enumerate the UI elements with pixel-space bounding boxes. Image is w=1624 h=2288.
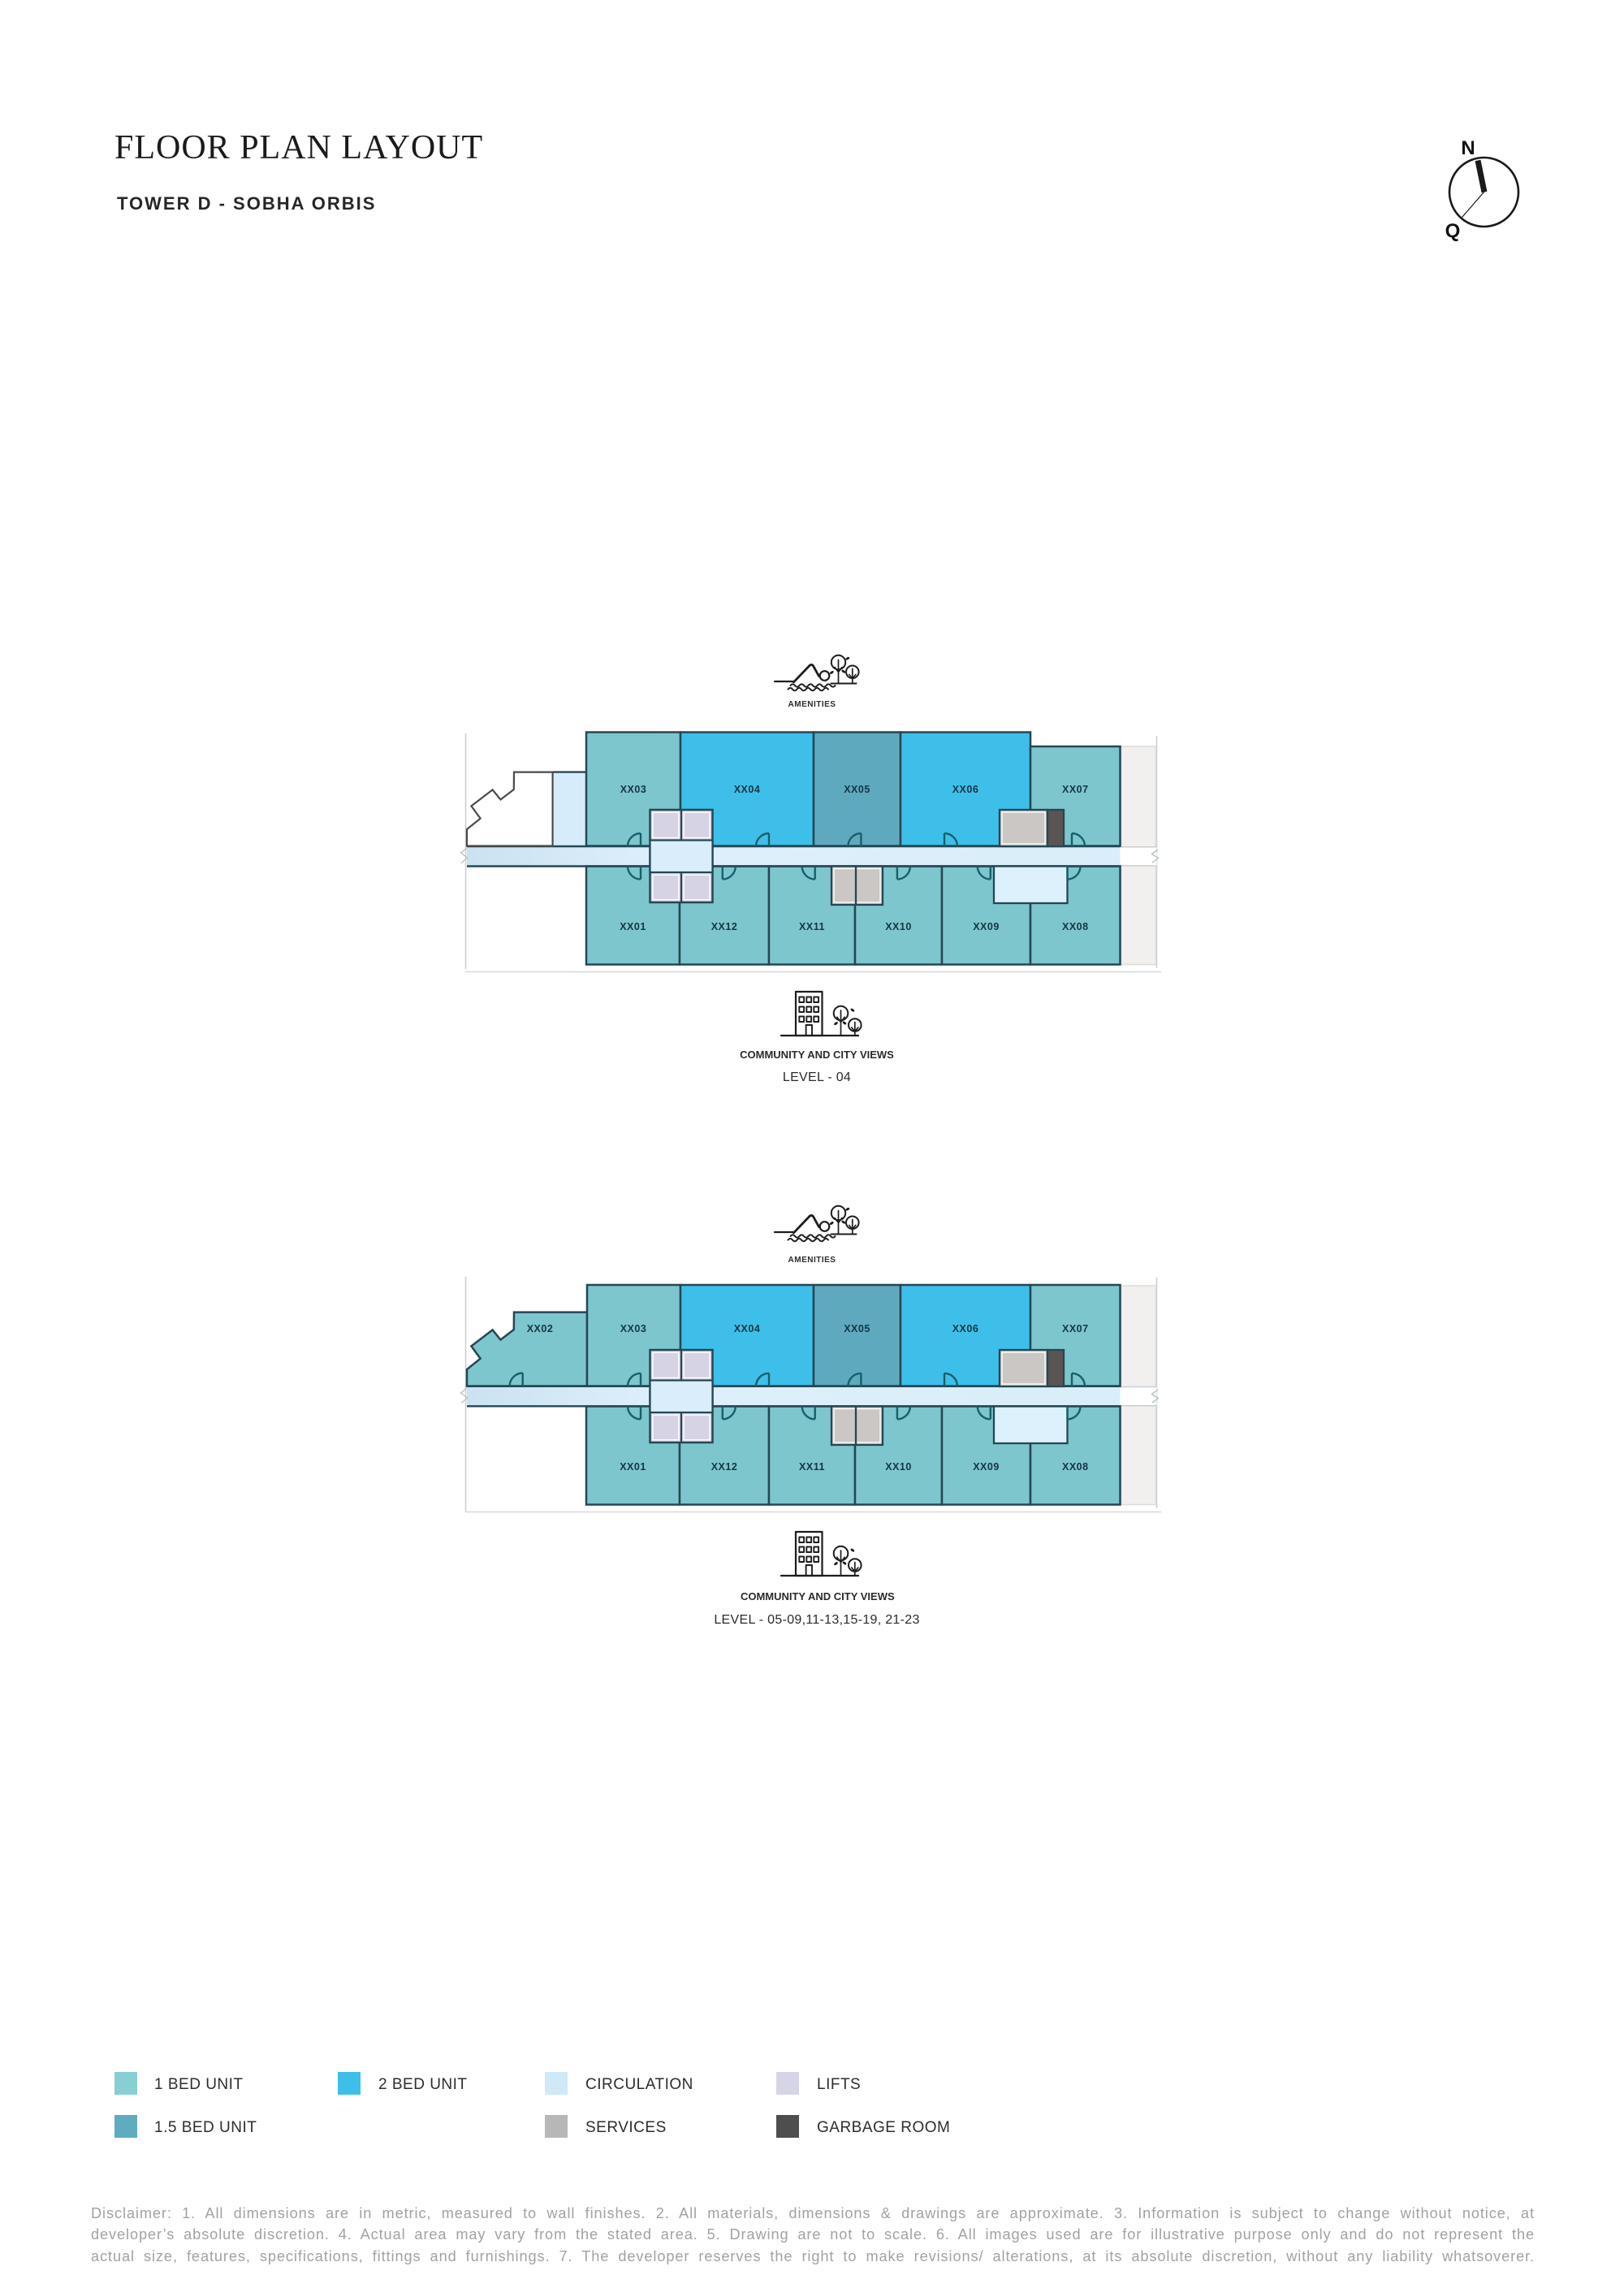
svg-text:XX09: XX09 <box>973 921 1000 932</box>
svg-text:COMMUNITY AND CITY VIEWS: COMMUNITY AND CITY VIEWS <box>741 1590 895 1602</box>
svg-text:XX08: XX08 <box>1062 921 1089 932</box>
svg-text:XX10: XX10 <box>885 921 912 932</box>
svg-text:XX08: XX08 <box>1062 1461 1089 1473</box>
svg-text:XX09: XX09 <box>973 1461 1000 1473</box>
svg-text:AMENITIES: AMENITIES <box>788 700 836 709</box>
svg-text:XX11: XX11 <box>799 921 825 932</box>
svg-text:XX03: XX03 <box>620 1323 647 1334</box>
svg-text:XX01: XX01 <box>620 921 646 932</box>
svg-text:XX03: XX03 <box>620 784 647 795</box>
svg-text:XX02: XX02 <box>527 1323 554 1334</box>
svg-text:XX06: XX06 <box>952 784 979 795</box>
svg-text:XX11: XX11 <box>799 1461 825 1473</box>
svg-text:XX07: XX07 <box>1062 1323 1089 1334</box>
svg-text:LEVEL - 04: LEVEL - 04 <box>783 1070 851 1084</box>
svg-text:XX07: XX07 <box>1062 784 1089 795</box>
svg-text:N: N <box>1461 137 1475 159</box>
svg-text:XX10: XX10 <box>885 1461 912 1473</box>
svg-text:XX01: XX01 <box>620 1461 646 1473</box>
svg-text:XX06: XX06 <box>952 1323 979 1334</box>
svg-text:XX05: XX05 <box>844 784 870 795</box>
svg-text:XX05: XX05 <box>844 1323 870 1334</box>
svg-text:AMENITIES: AMENITIES <box>788 1256 836 1265</box>
svg-text:Q: Q <box>1445 220 1461 242</box>
svg-text:XX04: XX04 <box>734 1323 761 1334</box>
svg-text:XX04: XX04 <box>734 784 761 795</box>
svg-text:LEVEL - 05-09,11-13,15-19, 21-: LEVEL - 05-09,11-13,15-19, 21-23 <box>714 1613 919 1627</box>
svg-text:XX12: XX12 <box>711 921 738 932</box>
svg-text:COMMUNITY AND CITY VIEWS: COMMUNITY AND CITY VIEWS <box>740 1049 894 1061</box>
svg-text:XX12: XX12 <box>711 1461 738 1473</box>
